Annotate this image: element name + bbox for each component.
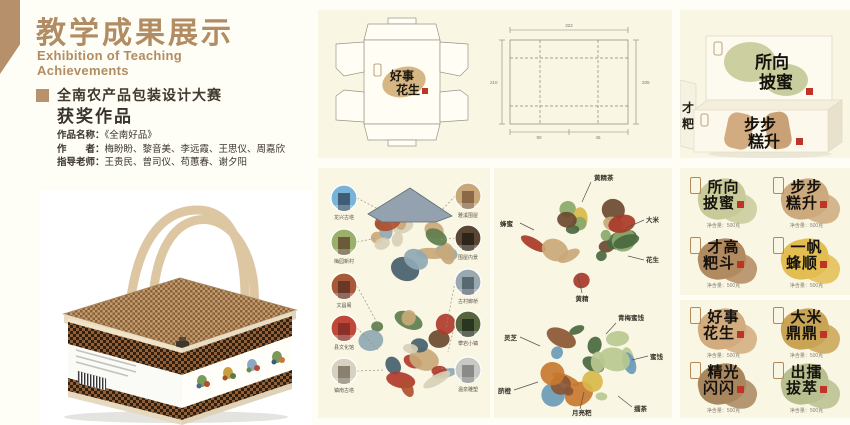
box-left-partial: 才 粑: [680, 80, 696, 150]
dieline-panel: 好事 花生 322 205 210 9: [318, 10, 672, 158]
logo-subtitle: 净含量：500克: [768, 222, 846, 229]
work-name-row: 作品名称：《全南好品》: [57, 129, 285, 143]
logo-subtitle: 净含量：500克: [768, 407, 846, 414]
svg-text:322: 322: [565, 23, 573, 28]
box-back: 所向 披蜜 净含量：500克: [706, 36, 832, 108]
product-logo: 才高粑斗净含量：500克: [685, 234, 763, 289]
food-characters-panel: 黄精茶蜂蜜大米花生黄精青梅蜜饯灵芝蜜饯脐橙月亮粑擂茶: [494, 168, 672, 418]
logo-subtitle: 净含量：500克: [685, 352, 763, 359]
page-title: 教学成果展示: [36, 8, 234, 52]
svg-text:45: 45: [595, 135, 601, 140]
svg-text:糕升: 糕升: [748, 132, 780, 151]
food-label: 蜜饯: [650, 352, 664, 361]
landmark-photo: [331, 315, 357, 341]
landmark-photo: [455, 311, 481, 337]
food-collage-pin: [538, 323, 639, 411]
food-label: 青梅蜜饯: [618, 313, 645, 322]
food-label: 灵芝: [504, 333, 518, 342]
logo-card-bottom: 好事花生净含量：500克大米鼎鼎净含量：500克精光闪闪净含量：500克出擂拔萃…: [680, 300, 850, 418]
food-collage-hao: [519, 195, 641, 290]
svg-text:205: 205: [642, 80, 650, 85]
logo-calligraphy-text: 大米鼎鼎: [768, 310, 846, 342]
landmark-label: 文昌阁: [336, 302, 351, 309]
logo-subtitle: 净含量：500克: [768, 352, 846, 359]
basket-illustration: [40, 190, 312, 425]
food-label: 黄精: [576, 294, 590, 303]
logo-subtitle: 净含量：500克: [685, 407, 763, 414]
presentation-slide: 教学成果展示 Exhibition of Teaching Achievemen…: [0, 0, 850, 425]
landmark-map-panel: 龙兴古塔梅园新村文昌阁县文化馆镇南古塔雅溪围屋围屋内景古村廊桥攀岩小镇温泉雕塑: [318, 168, 490, 418]
page-subtitle-en: Exhibition of Teaching Achievements: [37, 48, 182, 78]
red-seal-stamp: [820, 331, 827, 338]
landmark-photo: [455, 357, 481, 383]
svg-text:210: 210: [490, 80, 498, 85]
svg-text:步步: 步步: [744, 115, 776, 134]
food-label: 大米: [646, 215, 660, 224]
product-logo: 好事花生净含量：500克: [685, 304, 763, 359]
landmark-label: 镇南古塔: [334, 387, 354, 394]
work-info: 作品名称：《全南好品》 作 者：梅盼盼、黎音美、李远霞、王思仪、周嘉欣 指导老师…: [57, 129, 285, 170]
boxes-photo-panel: 才 粑 所向 披蜜 净含量：500克 步步 糕升: [680, 10, 850, 158]
box-front: 步步 糕升: [694, 100, 842, 152]
landmark-label: 围屋内景: [458, 254, 478, 261]
red-seal-stamp: [737, 331, 744, 338]
logo-calligraphy-text: 一帆蜂顺: [768, 240, 846, 272]
landmark-collage-nan: [357, 307, 458, 399]
red-seal-stamp: [737, 201, 744, 208]
design-text-line1: 好事: [389, 68, 414, 83]
logo-subtitle: 净含量：500克: [685, 222, 763, 229]
landmark-photo: [331, 273, 357, 299]
landmark-label: 梅园新村: [334, 258, 354, 265]
landmark-photo: [455, 269, 481, 295]
design-text-line2: 花生: [396, 82, 420, 97]
logo-subtitle: 净含量：500克: [768, 282, 846, 289]
dimension-lines: [499, 27, 639, 135]
landmark-photo: [331, 229, 357, 255]
product-logo: 步步糕升净含量：500克: [768, 174, 846, 229]
food-label: 花生: [646, 255, 660, 264]
logo-subtitle: 净含量：500克: [685, 282, 763, 289]
svg-text:90: 90: [536, 135, 542, 140]
food-label: 脐橙: [497, 386, 512, 395]
logo-calligraphy-text: 出擂拔萃: [768, 365, 846, 397]
product-logo: 一帆蜂顺净含量：500克: [768, 234, 846, 289]
logo-calligraphy-text: 步步糕升: [768, 180, 846, 212]
landmark-photo: [331, 358, 357, 384]
landmark-label: 古村廊桥: [458, 298, 478, 305]
logo-calligraphy-text: 好事花生: [685, 310, 763, 342]
teachers-row: 指导老师：王贵民、曾司仪、苟蕙春、谢夕阳: [57, 156, 285, 170]
landmark-photo: [455, 183, 481, 209]
authors-row: 作 者：梅盼盼、黎音美、李远霞、王思仪、周嘉欣: [57, 143, 285, 157]
red-seal-stamp: [737, 386, 744, 393]
logo-calligraphy-text: 所向披蜜: [685, 180, 763, 212]
product-logo: 精光闪闪净含量：500克: [685, 359, 763, 414]
landmark-label: 温泉雕塑: [458, 386, 478, 393]
food-label: 黄精茶: [594, 173, 614, 182]
red-seal-stamp: [806, 88, 813, 95]
red-seal-stamp: [820, 386, 827, 393]
award-heading: 获奖作品: [57, 102, 133, 127]
landmark-photo: [331, 185, 357, 211]
dieline-technical: [510, 40, 628, 124]
svg-text:才: 才: [682, 100, 694, 115]
svg-text:粑: 粑: [682, 116, 694, 131]
landmark-photo: [455, 225, 481, 251]
landmark-label: 攀岩小镇: [458, 340, 478, 347]
landmark-label: 龙兴古塔: [334, 214, 354, 221]
product-logo: 大米鼎鼎净含量：500克: [768, 304, 846, 359]
landmark-label: 雅溪围屋: [458, 212, 478, 219]
square-bullet-icon: [36, 89, 49, 102]
collage-roof: [368, 188, 452, 222]
logo-calligraphy-text: 精光闪闪: [685, 365, 763, 397]
food-label: 蜂蜜: [500, 219, 514, 228]
red-seal-stamp: [820, 261, 827, 268]
corner-decoration: [0, 0, 20, 74]
food-label: 擂茶: [634, 404, 648, 413]
svg-text:所向: 所向: [755, 52, 789, 72]
red-seal-stamp: [737, 261, 744, 268]
landmark-label: 县文化馆: [334, 344, 354, 351]
svg-text:披蜜: 披蜜: [759, 72, 793, 92]
basket-product-photo: [40, 190, 312, 425]
red-seal-stamp: [796, 138, 803, 145]
red-seal-stamp: [422, 88, 428, 94]
red-seal-stamp: [820, 201, 827, 208]
logo-card-top: 所向披蜜净含量：500克步步糕升净含量：500克才高粑斗净含量：500克一帆蜂顺…: [680, 168, 850, 295]
logo-calligraphy-text: 才高粑斗: [685, 240, 763, 272]
dimension-labels: 322 205 210 90 45: [490, 23, 650, 140]
product-logo: 出擂拔萃净含量：500克: [768, 359, 846, 414]
food-label: 月亮粑: [571, 408, 592, 417]
product-logo: 所向披蜜净含量：500克: [685, 174, 763, 229]
